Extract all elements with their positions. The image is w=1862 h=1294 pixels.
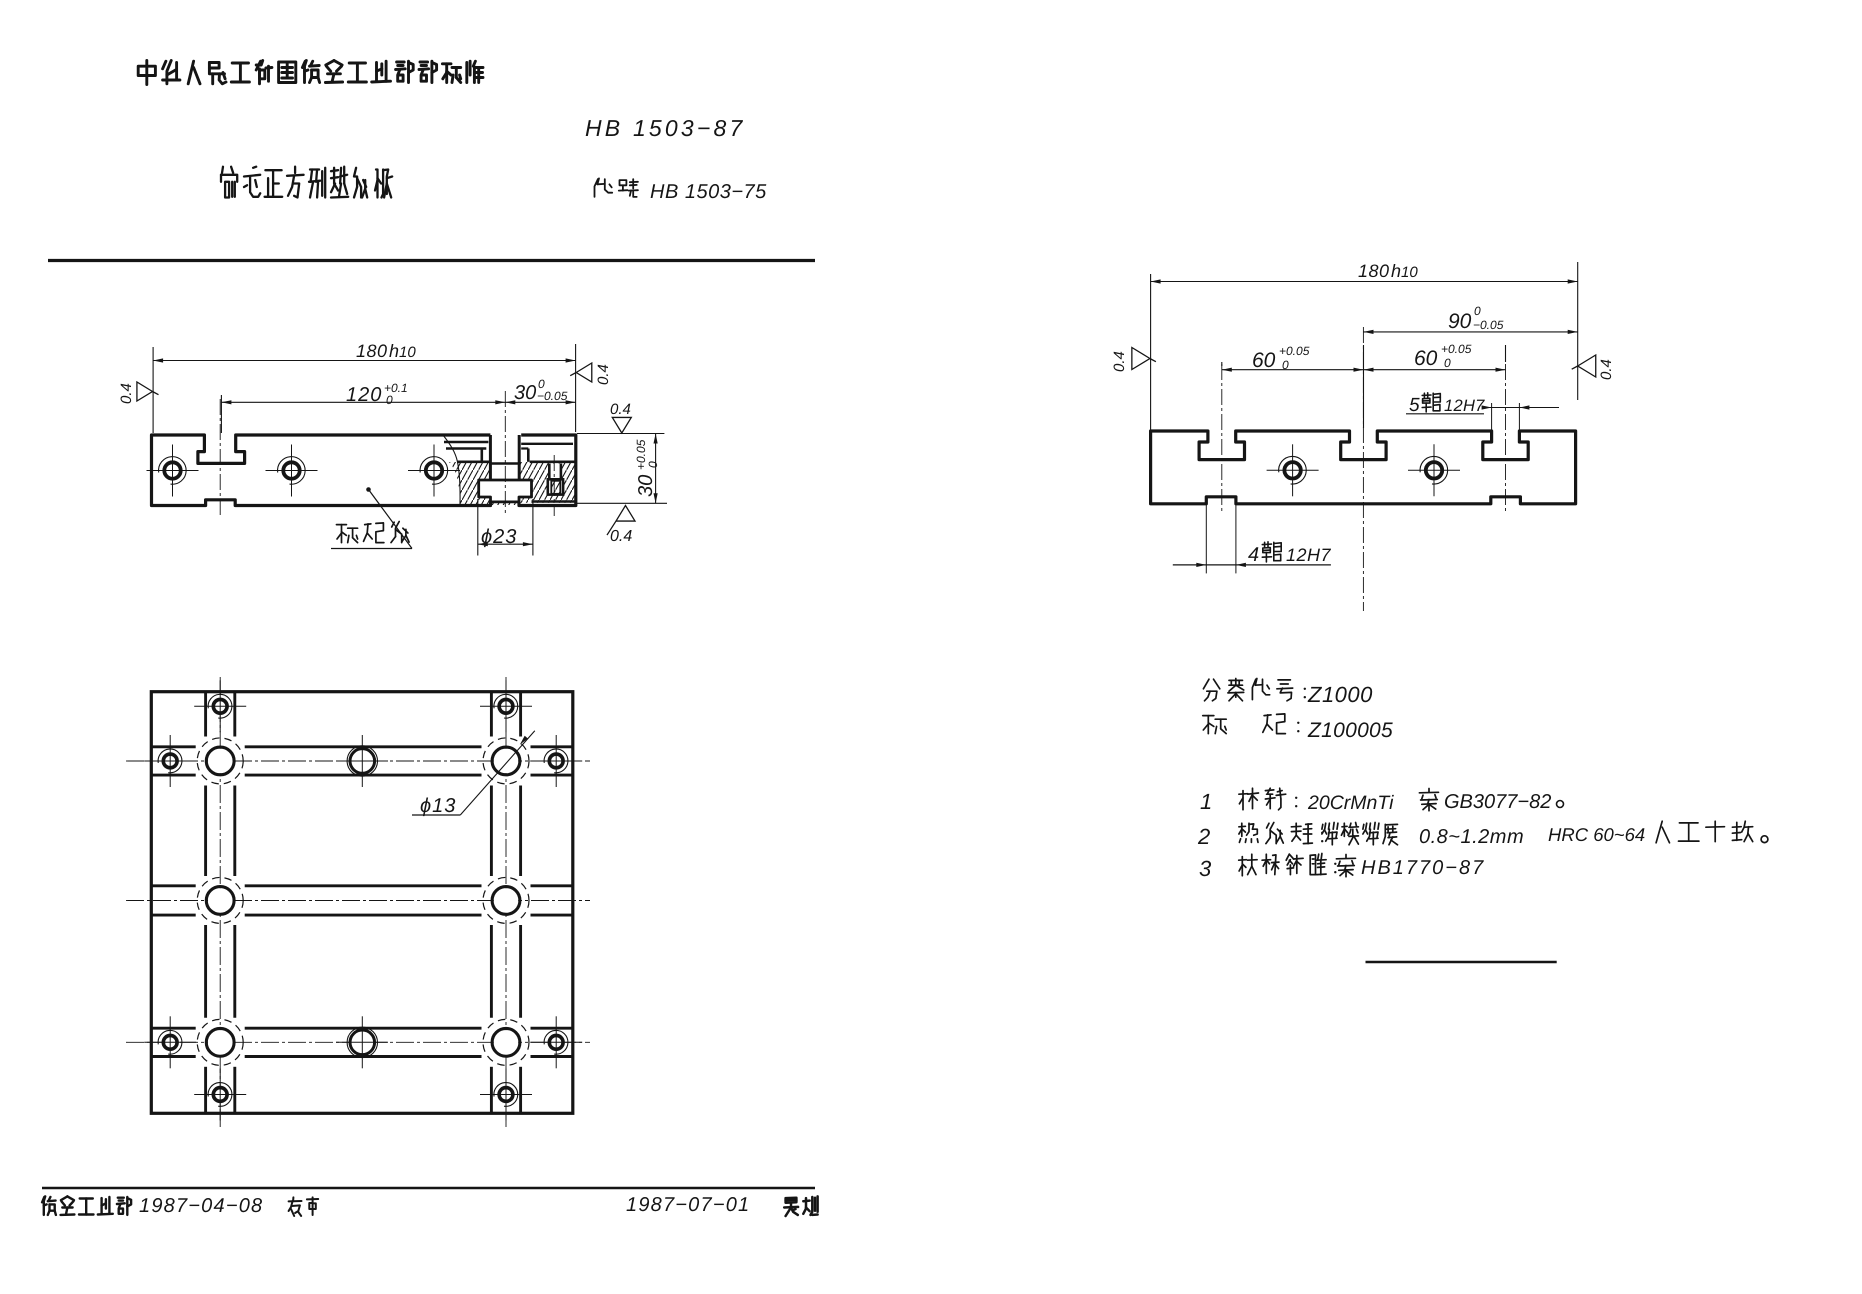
svg-text:0: 0 bbox=[1282, 358, 1289, 372]
svg-text:HB 1503−87: HB 1503−87 bbox=[585, 115, 746, 141]
svg-text:0: 0 bbox=[1444, 356, 1451, 370]
svg-text:60: 60 bbox=[1252, 349, 1276, 372]
svg-text:0.8~1.2mm: 0.8~1.2mm bbox=[1419, 826, 1524, 848]
svg-text:0: 0 bbox=[1474, 304, 1481, 318]
svg-text:0.4: 0.4 bbox=[118, 383, 135, 404]
svg-text:60: 60 bbox=[1414, 347, 1438, 370]
svg-text:ϕ23: ϕ23 bbox=[481, 526, 517, 548]
svg-text:12H7: 12H7 bbox=[1286, 545, 1332, 565]
svg-text:10: 10 bbox=[399, 344, 416, 361]
svg-text:4: 4 bbox=[1248, 544, 1259, 566]
svg-text:3: 3 bbox=[1199, 856, 1212, 881]
svg-text:30: 30 bbox=[514, 382, 536, 404]
svg-text:12H7: 12H7 bbox=[1444, 397, 1485, 415]
svg-text:5: 5 bbox=[1409, 395, 1420, 416]
svg-text:GB3077−82: GB3077−82 bbox=[1444, 791, 1551, 813]
svg-text:+0.05: +0.05 bbox=[1441, 342, 1472, 356]
svg-text:+0.05: +0.05 bbox=[1279, 344, 1310, 358]
svg-text:−0.05: −0.05 bbox=[537, 389, 568, 403]
svg-text:HB 1503−75: HB 1503−75 bbox=[650, 181, 767, 203]
svg-text:0: 0 bbox=[386, 393, 393, 407]
svg-text:2: 2 bbox=[1197, 824, 1210, 849]
svg-text:0: 0 bbox=[646, 461, 660, 468]
svg-text:0.4: 0.4 bbox=[610, 528, 632, 545]
svg-text:10: 10 bbox=[1401, 264, 1418, 281]
svg-text:1: 1 bbox=[1200, 789, 1212, 814]
svg-text:120: 120 bbox=[346, 384, 382, 406]
svg-text:0.4: 0.4 bbox=[1111, 351, 1128, 372]
svg-text:Z100005: Z100005 bbox=[1307, 719, 1393, 742]
svg-text:1987−04−08: 1987−04−08 bbox=[139, 1195, 263, 1217]
svg-text:HRC 60~64: HRC 60~64 bbox=[1548, 824, 1645, 845]
svg-text:HB1770−87: HB1770−87 bbox=[1361, 857, 1485, 879]
svg-text:30: 30 bbox=[635, 475, 657, 497]
svg-text:0.4: 0.4 bbox=[595, 364, 612, 385]
svg-text:h: h bbox=[389, 341, 399, 361]
svg-text:0.4: 0.4 bbox=[1598, 359, 1615, 380]
svg-text:90: 90 bbox=[1448, 310, 1472, 333]
svg-text:Z1000: Z1000 bbox=[1307, 682, 1373, 707]
svg-text:180: 180 bbox=[1358, 261, 1390, 281]
svg-text:180: 180 bbox=[356, 341, 388, 361]
svg-text:−0.05: −0.05 bbox=[1473, 318, 1504, 332]
svg-text:0.4: 0.4 bbox=[610, 401, 631, 418]
svg-text:ϕ13: ϕ13 bbox=[420, 795, 456, 817]
svg-text:h: h bbox=[1391, 261, 1401, 281]
svg-text:1987−07−01: 1987−07−01 bbox=[626, 1194, 750, 1216]
svg-text:20CrMnTi: 20CrMnTi bbox=[1307, 792, 1394, 814]
